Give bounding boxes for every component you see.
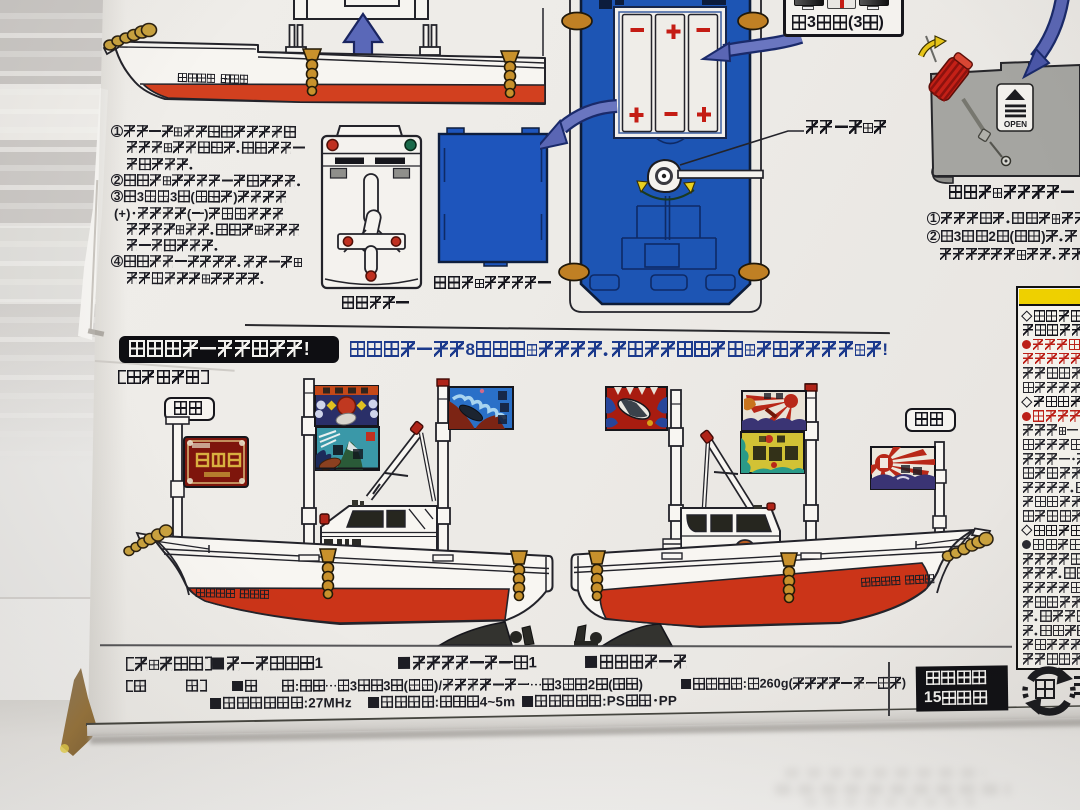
svg-text:OPEN: OPEN xyxy=(1004,120,1027,129)
